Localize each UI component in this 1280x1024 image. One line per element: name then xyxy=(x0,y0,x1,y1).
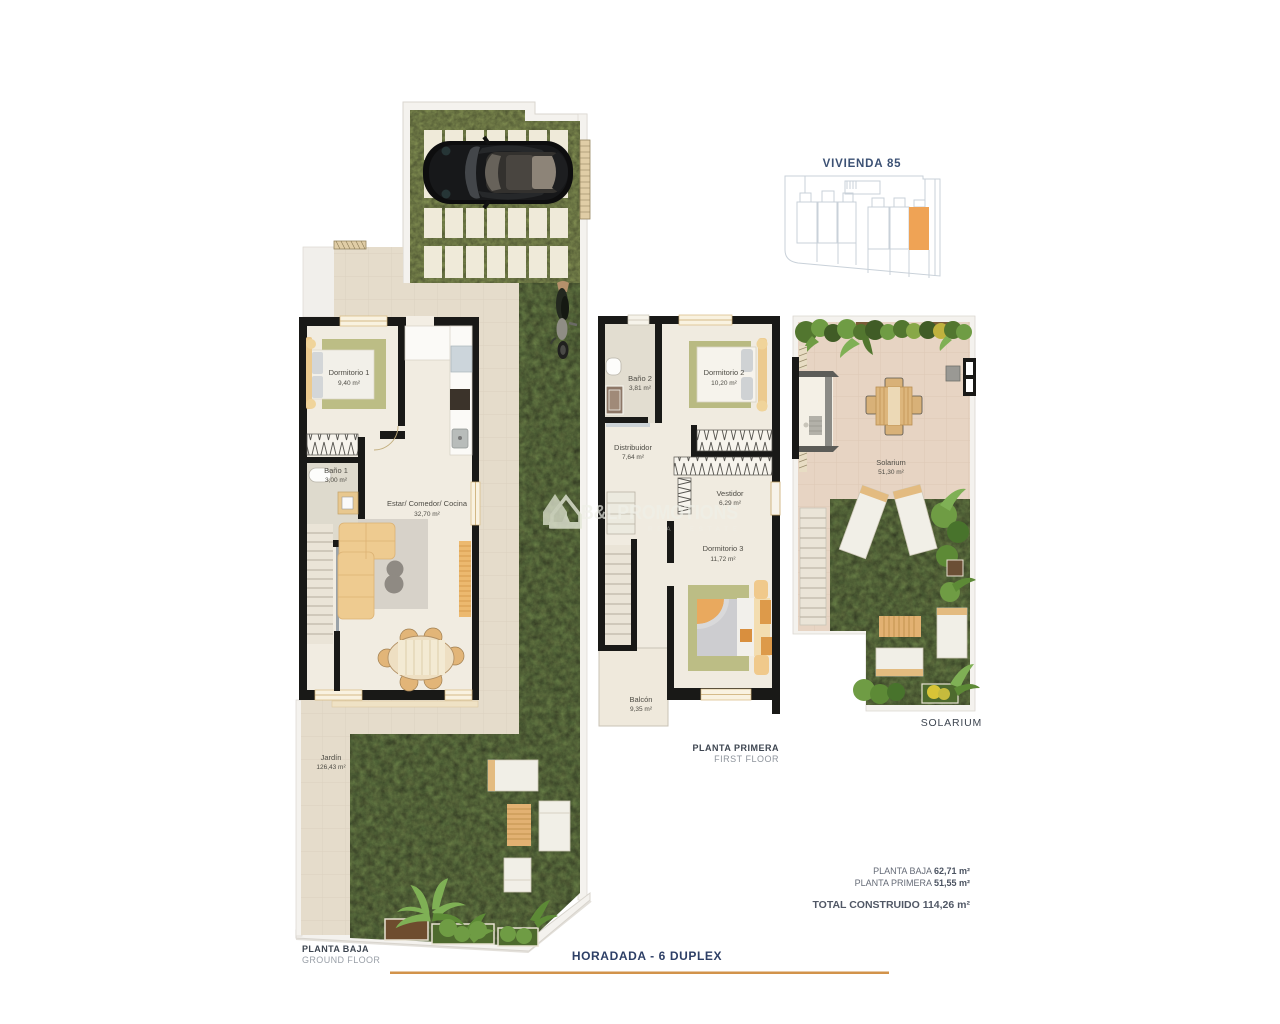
svg-text:7,64 m²: 7,64 m² xyxy=(622,454,645,461)
svg-text:11,72 m²: 11,72 m² xyxy=(710,556,736,563)
svg-text:Distribuidor: Distribuidor xyxy=(614,443,652,452)
svg-text:REAL ESTATE: REAL ESTATE xyxy=(648,526,740,533)
svg-text:HORADADA - 6 DUPLEX: HORADADA - 6 DUPLEX xyxy=(572,949,722,963)
svg-text:SOLARIUM: SOLARIUM xyxy=(921,717,982,729)
svg-text:FIRST FLOOR: FIRST FLOOR xyxy=(714,754,779,764)
svg-text:Solarium: Solarium xyxy=(876,458,906,467)
svg-text:GROUND FLOOR: GROUND FLOOR xyxy=(302,955,380,965)
svg-text:Dormitorio 1: Dormitorio 1 xyxy=(329,368,370,377)
svg-text:9,35 m²: 9,35 m² xyxy=(630,706,653,713)
svg-text:PLANTA BAJA: PLANTA BAJA xyxy=(302,944,369,954)
svg-text:PLANTA PRIMERA 51,55 m²: PLANTA PRIMERA 51,55 m² xyxy=(855,878,970,888)
svg-text:Estar/ Comedor/ Cocina: Estar/ Comedor/ Cocina xyxy=(387,499,468,508)
svg-text:10,20 m²: 10,20 m² xyxy=(711,380,737,387)
svg-text:Baño 1: Baño 1 xyxy=(324,466,348,475)
svg-text:PLANTA BAJA 62,71 m²: PLANTA BAJA 62,71 m² xyxy=(873,866,970,876)
svg-text:TOTAL CONSTRUIDO 114,26 m²: TOTAL CONSTRUIDO 114,26 m² xyxy=(812,899,970,911)
svg-text:Balcón: Balcón xyxy=(630,695,653,704)
svg-text:Baño 2: Baño 2 xyxy=(628,374,652,383)
svg-text:Dormitorio 2: Dormitorio 2 xyxy=(704,368,745,377)
svg-text:51,30 m²: 51,30 m² xyxy=(878,469,904,476)
svg-text:32,70 m²: 32,70 m² xyxy=(414,511,440,518)
svg-text:126,43 m²: 126,43 m² xyxy=(316,764,346,771)
svg-text:9,40 m²: 9,40 m² xyxy=(338,380,361,387)
svg-text:VIVIENDA 85: VIVIENDA 85 xyxy=(823,158,902,170)
svg-text:Vestidor: Vestidor xyxy=(716,489,744,498)
svg-text:3,00 m²: 3,00 m² xyxy=(325,477,348,484)
svg-text:3,81 m²: 3,81 m² xyxy=(629,385,652,392)
svg-text:PLANTA PRIMERA: PLANTA PRIMERA xyxy=(693,743,780,753)
svg-text:B&LPROMOTIONS: B&LPROMOTIONS xyxy=(581,501,738,524)
svg-text:Jardín: Jardín xyxy=(321,753,342,762)
svg-text:Dormitorio 3: Dormitorio 3 xyxy=(703,544,744,553)
